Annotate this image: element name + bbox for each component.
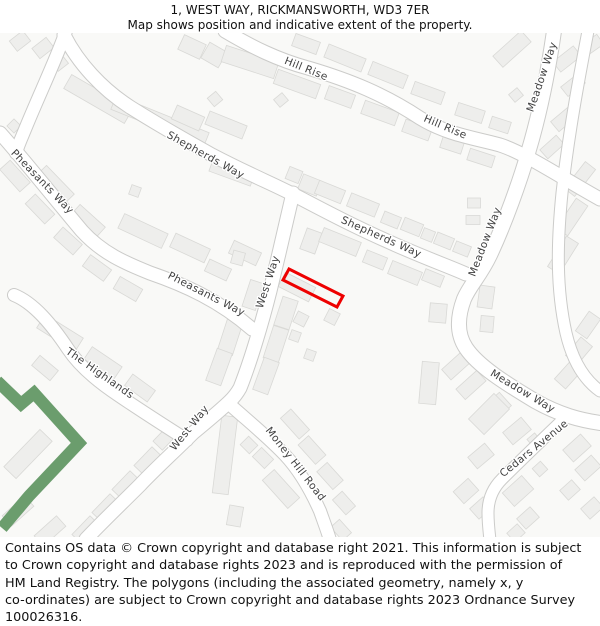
copyright-footer: Contains OS data © Crown copyright and d… (0, 537, 600, 626)
map-container: Hill RiseHill RiseShepherds WayShepherds… (0, 33, 600, 537)
building (466, 216, 480, 225)
building (477, 285, 495, 309)
building (480, 315, 494, 332)
copyright-line: HM Land Registry. The polygons (includin… (5, 575, 595, 592)
map-header: 1, WEST WAY, RICKMANSWORTH, WD3 7ER Map … (0, 0, 600, 33)
copyright-line: Contains OS data © Crown copyright and d… (5, 540, 595, 557)
page-subtitle: Map shows position and indicative extent… (0, 18, 600, 33)
map-canvas: Hill RiseHill RiseShepherds WayShepherds… (0, 33, 600, 537)
page: 1, WEST WAY, RICKMANSWORTH, WD3 7ER Map … (0, 0, 600, 625)
page-title: 1, WEST WAY, RICKMANSWORTH, WD3 7ER (0, 3, 600, 18)
copyright-line: co-ordinates) are subject to Crown copyr… (5, 592, 595, 609)
copyright-line: 100026316. (5, 609, 595, 626)
building (419, 361, 440, 404)
building (468, 198, 481, 208)
building (429, 303, 448, 323)
copyright-line: to Crown copyright and database rights 2… (5, 557, 595, 574)
building (226, 505, 243, 527)
